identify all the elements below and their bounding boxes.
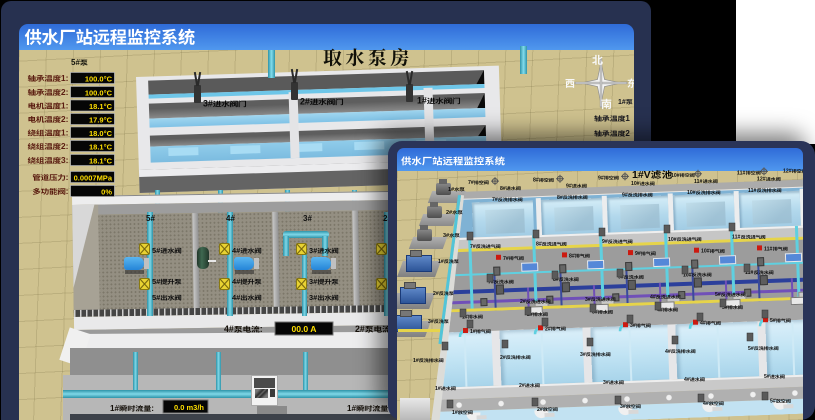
svg-text:2#: 2# xyxy=(520,299,526,305)
svg-text:100.0°C: 100.0°C xyxy=(85,74,113,83)
svg-text:1#: 1# xyxy=(435,386,441,392)
svg-text:5#: 5# xyxy=(71,58,80,67)
svg-text:7#: 7# xyxy=(492,197,498,203)
svg-text:1:: 1: xyxy=(61,128,69,138)
svg-text:3#: 3# xyxy=(309,277,317,286)
svg-text:5#: 5# xyxy=(770,399,776,405)
svg-text:1#: 1# xyxy=(470,329,476,335)
svg-text:1:: 1: xyxy=(61,73,69,83)
svg-text:9#: 9# xyxy=(622,193,628,199)
svg-text:1#: 1# xyxy=(110,404,120,413)
svg-text:2#: 2# xyxy=(545,326,551,332)
svg-text:10#: 10# xyxy=(668,237,677,243)
svg-text:18.1°C: 18.1°C xyxy=(89,156,113,165)
svg-text:10#: 10# xyxy=(631,181,640,187)
svg-text:8#: 8# xyxy=(500,186,506,192)
svg-text:3#: 3# xyxy=(303,214,312,223)
svg-text:4#: 4# xyxy=(232,293,240,302)
svg-text:3#: 3# xyxy=(580,352,586,358)
svg-text:12#: 12# xyxy=(757,177,766,183)
svg-text:2: 2 xyxy=(625,129,630,138)
svg-text:4#: 4# xyxy=(232,246,240,255)
svg-text:4#: 4# xyxy=(665,349,671,355)
svg-text:0.0 m3/h: 0.0 m3/h xyxy=(174,403,204,412)
svg-text:10#: 10# xyxy=(687,190,696,196)
svg-text:9#: 9# xyxy=(598,175,604,181)
svg-text:3#: 3# xyxy=(309,246,317,255)
svg-text:5#: 5# xyxy=(715,292,721,298)
svg-text:4#: 4# xyxy=(226,214,235,223)
svg-text:7#: 7# xyxy=(470,244,476,250)
svg-text:1#: 1# xyxy=(618,99,626,106)
svg-text:0%: 0% xyxy=(101,187,112,196)
svg-text:4#: 4# xyxy=(232,277,240,286)
svg-text:3:: 3: xyxy=(61,155,69,165)
svg-text:4#: 4# xyxy=(684,377,690,383)
svg-text:11#: 11# xyxy=(748,188,756,194)
svg-text:100.0°C: 100.0°C xyxy=(85,88,113,97)
svg-text:2#: 2# xyxy=(300,97,310,107)
svg-text:7#: 7# xyxy=(468,180,474,186)
svg-text:5#: 5# xyxy=(748,346,754,352)
svg-text:9#: 9# xyxy=(602,239,608,245)
svg-text:1#: 1# xyxy=(347,404,357,413)
svg-text:17.9°C: 17.9°C xyxy=(89,115,113,124)
svg-text:1#: 1# xyxy=(448,187,454,193)
svg-text:4#: 4# xyxy=(650,295,656,301)
svg-text:8#: 8# xyxy=(557,195,563,201)
svg-text:0.0007MPa: 0.0007MPa xyxy=(74,173,113,182)
svg-text:2#: 2# xyxy=(433,291,439,297)
svg-text:11#: 11# xyxy=(694,179,702,185)
svg-text::: : xyxy=(66,172,69,182)
svg-text:2#: 2# xyxy=(355,324,365,334)
svg-text:2:: 2: xyxy=(61,114,69,124)
svg-text:11#: 11# xyxy=(764,246,772,252)
svg-text:5#: 5# xyxy=(770,318,776,324)
svg-text::: : xyxy=(260,324,263,334)
svg-text:2#: 2# xyxy=(519,383,525,389)
svg-text:5#: 5# xyxy=(152,277,160,286)
svg-text:8#: 8# xyxy=(569,253,575,259)
svg-text:11#: 11# xyxy=(732,235,740,241)
svg-text:1: 1 xyxy=(625,114,630,123)
svg-text:2#: 2# xyxy=(500,355,506,361)
svg-text:2:: 2: xyxy=(61,87,69,97)
svg-text::: : xyxy=(66,186,69,196)
svg-text:8#: 8# xyxy=(536,242,542,248)
svg-text:5#: 5# xyxy=(146,214,155,223)
svg-text:2#: 2# xyxy=(537,407,543,413)
svg-text:5#: 5# xyxy=(152,293,160,302)
svg-text:3#: 3# xyxy=(309,293,317,302)
svg-text:3#: 3# xyxy=(585,297,591,303)
svg-text:7#: 7# xyxy=(503,256,509,262)
svg-text:2:: 2: xyxy=(61,141,69,151)
svg-text:18.1°C: 18.1°C xyxy=(89,142,113,151)
svg-text:11#: 11# xyxy=(737,170,745,176)
svg-text:1#: 1# xyxy=(413,358,419,364)
svg-text:10#: 10# xyxy=(671,173,680,179)
svg-text:2#: 2# xyxy=(446,210,452,216)
svg-text:12#: 12# xyxy=(783,169,792,175)
svg-text:18.0°C: 18.0°C xyxy=(89,129,113,138)
svg-text:00.0 A: 00.0 A xyxy=(291,324,316,334)
svg-text:8#: 8# xyxy=(533,178,539,184)
svg-text:3#: 3# xyxy=(203,99,213,109)
svg-text:1#: 1# xyxy=(438,259,444,265)
svg-text:3#: 3# xyxy=(630,323,636,329)
svg-text:5#: 5# xyxy=(764,374,770,380)
svg-text:9#: 9# xyxy=(566,184,572,190)
svg-text:3#: 3# xyxy=(603,380,609,386)
svg-text:9#: 9# xyxy=(635,251,641,257)
svg-text::: : xyxy=(151,404,154,413)
svg-text:3#: 3# xyxy=(428,319,434,325)
svg-text:4#: 4# xyxy=(224,324,234,334)
svg-text:18.1°C: 18.1°C xyxy=(89,102,113,111)
svg-text:3#: 3# xyxy=(620,404,626,410)
svg-text:1#V: 1#V xyxy=(632,169,651,181)
svg-text:1#: 1# xyxy=(417,96,427,106)
svg-text:10#: 10# xyxy=(701,249,710,255)
svg-text:1:: 1: xyxy=(61,101,69,111)
svg-text:3#: 3# xyxy=(443,233,449,239)
svg-text:5#: 5# xyxy=(152,246,160,255)
svg-text:1#: 1# xyxy=(452,410,458,416)
svg-text:4#: 4# xyxy=(700,321,706,327)
